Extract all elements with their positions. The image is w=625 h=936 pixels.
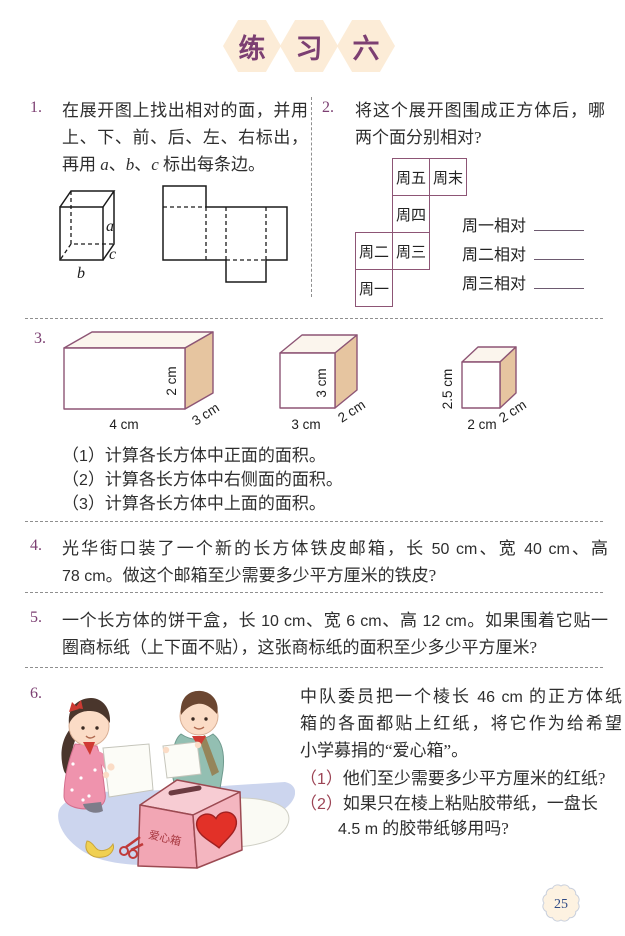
net-cell: 周一 [355,269,393,307]
box-width-label: 2 cm [467,417,496,432]
problem-6-line: 箱的各面都贴上红纸，将它作为给希望 [300,711,622,737]
box-width-label: 3 cm [291,417,320,432]
answer-label: 周二相对 [462,247,526,264]
problem-6-line: 小学募捐的“爱心箱”。 [300,738,468,764]
problem-6-sub: （1）他们至少需要多少平方厘米的红纸? [300,766,605,793]
title-hexagon: 六 [337,20,395,72]
answer-label: 周三相对 [462,276,526,293]
box-width-label: 4 cm [109,417,138,432]
title-hexagon: 习 [280,20,338,72]
problem-4-line: 光华街口装了一个新的长方体铁皮邮箱，长 50 cm、宽 40 cm、高 [62,536,608,563]
answer-blank [534,216,584,231]
edge-label-a: a [106,218,114,235]
title-char: 习 [296,27,323,66]
problem-4-line: 78 cm。做这个邮箱至少需要多少平方厘米的铁皮? [62,563,436,590]
answer-row: 周二相对 [462,241,584,265]
problem-1-number: 1. [30,99,42,117]
page-number: 25 [554,897,568,912]
net-cell: 周二 [355,232,393,270]
title-char: 练 [239,27,266,66]
box-height-label: 2.5 cm [440,369,455,410]
answer-blank [534,274,584,289]
page-number-badge: 25 [539,881,583,925]
problem-3-sub: （2）计算各长方体中右侧面的面积。 [62,468,343,493]
problem-3-sub: （3）计算各长方体中上面的面积。 [62,492,326,517]
problem-5-line: 圈商标纸（上下面不贴），这张商标纸的面积至少多少平方厘米? [62,635,537,661]
section-separator [25,592,603,593]
answer-blank [534,245,584,260]
answer-row: 周三相对 [462,270,584,294]
net-figure [160,183,292,286]
answer-label: 周一相对 [462,218,526,235]
exercise-title: 练 习 六 [224,20,404,72]
edge-label-c: c [109,246,116,263]
net-cell: 周三 [392,232,430,270]
box-height-label: 3 cm [314,368,329,397]
edge-label-b: b [77,265,85,282]
textbook-page: 练 习 六 1. 在展开图上找出相对的面，并用 上、下、前、后、左、右标出， 再… [0,0,625,936]
section-separator [25,667,603,668]
net-cell: 周末 [429,158,467,196]
problem-2-line: 两个面分别相对? [355,125,482,151]
donation-box-illustration: 爱心箱 [45,678,295,870]
net-cell: 周四 [392,195,430,233]
title-char: 六 [353,27,380,66]
boy-paper [163,742,201,778]
problem-1-line: 在展开图上找出相对的面，并用 [62,98,308,124]
cuboids-figure: 4 cm 2 cm 3 cm 3 cm 3 cm 2 cm 2.5 cm 2 c… [0,325,625,437]
problem-6-number: 6. [30,685,42,703]
answer-row: 周一相对 [462,212,584,236]
section-separator [25,521,603,522]
problem-5-number: 5. [30,609,42,627]
problem-2-line: 将这个展开图围成正方体后，哪 [355,98,605,124]
problem-6-line: 中队委员把一个棱长 46 cm 的正方体纸 [300,684,622,711]
problem-6-sub: （2）如果只在棱上粘贴胶带纸，一盘长 [300,791,598,818]
problem-6-sub: 4.5 m 的胶带纸够用吗? [338,816,509,843]
problem-1-line: 再用 a、b、c 标出每条边。 [62,152,265,178]
problem-1-line: 上、下、前、后、左、右标出， [62,125,308,151]
section-separator [25,318,603,319]
column-divider [311,97,312,297]
net-cell: 周五 [392,158,430,196]
problem-3-sub: （1）计算各长方体中正面的面积。 [62,444,326,469]
box-height-label: 2 cm [164,366,179,395]
title-hexagon: 练 [223,20,281,72]
problem-5-line: 一个长方体的饼干盒，长 10 cm、宽 6 cm、高 12 cm。如果围着它贴一 [62,608,608,635]
problem-2-number: 2. [322,99,334,117]
problem-4-number: 4. [30,537,42,555]
cuboid-figure: a c b [48,188,133,283]
